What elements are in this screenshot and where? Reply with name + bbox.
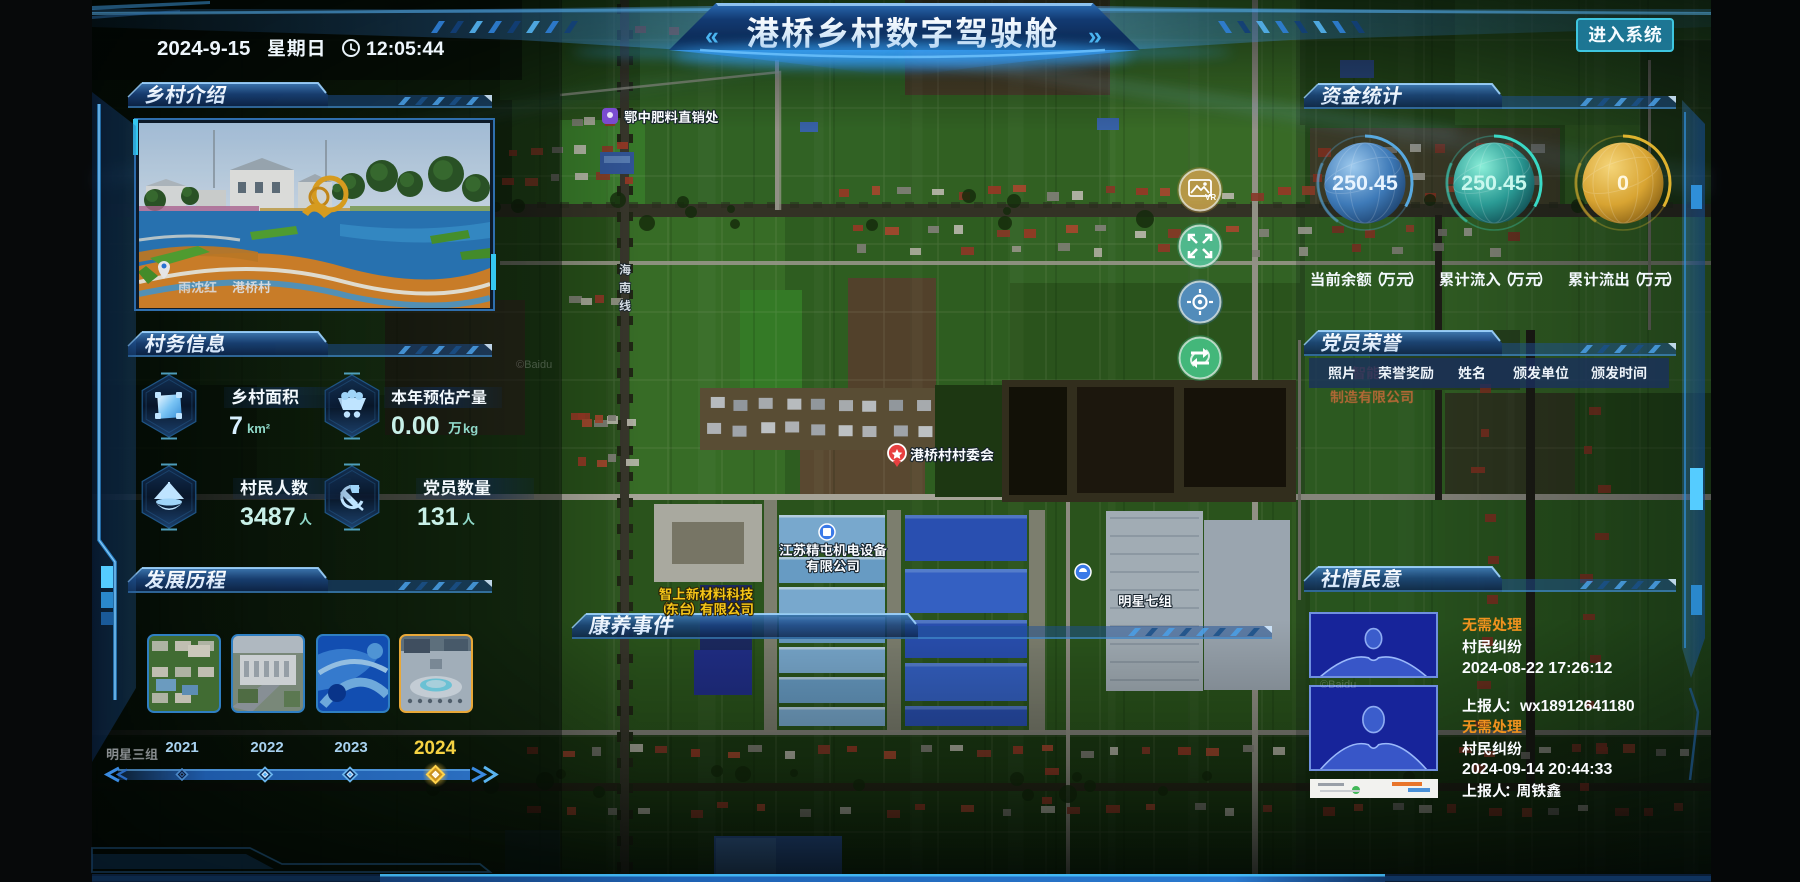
svg-text:7: 7 xyxy=(229,412,243,440)
svg-text:2024-08-22 17:26:12: 2024-08-22 17:26:12 xyxy=(1462,660,1612,677)
svg-text:250.45: 250.45 xyxy=(1332,171,1398,195)
svg-text:«: « xyxy=(705,22,719,50)
svg-text:km²: km² xyxy=(247,421,271,436)
svg-text:2024-09-14 20:44:33: 2024-09-14 20:44:33 xyxy=(1462,761,1612,778)
svg-text:0: 0 xyxy=(1617,171,1629,195)
svg-text:»: » xyxy=(1088,22,1102,50)
svg-text:2022: 2022 xyxy=(250,739,283,756)
svg-text:3487: 3487 xyxy=(240,503,296,531)
svg-text:©Baidu: ©Baidu xyxy=(516,359,552,371)
svg-text:2023: 2023 xyxy=(334,739,367,756)
svg-text:©Baidu: ©Baidu xyxy=(1320,679,1356,691)
svg-text:wx18912641180: wx18912641180 xyxy=(1519,698,1635,715)
svg-text:131: 131 xyxy=(417,503,459,531)
svg-text:VR: VR xyxy=(1205,193,1216,202)
svg-text:2024-9-15: 2024-9-15 xyxy=(157,37,250,60)
svg-text:12:05:44: 12:05:44 xyxy=(366,38,444,60)
svg-text:2021: 2021 xyxy=(165,739,198,756)
svg-text:kg: kg xyxy=(463,421,478,436)
svg-text:0.00: 0.00 xyxy=(391,412,440,440)
svg-text:2024: 2024 xyxy=(414,738,457,759)
svg-text:250.45: 250.45 xyxy=(1461,171,1527,195)
